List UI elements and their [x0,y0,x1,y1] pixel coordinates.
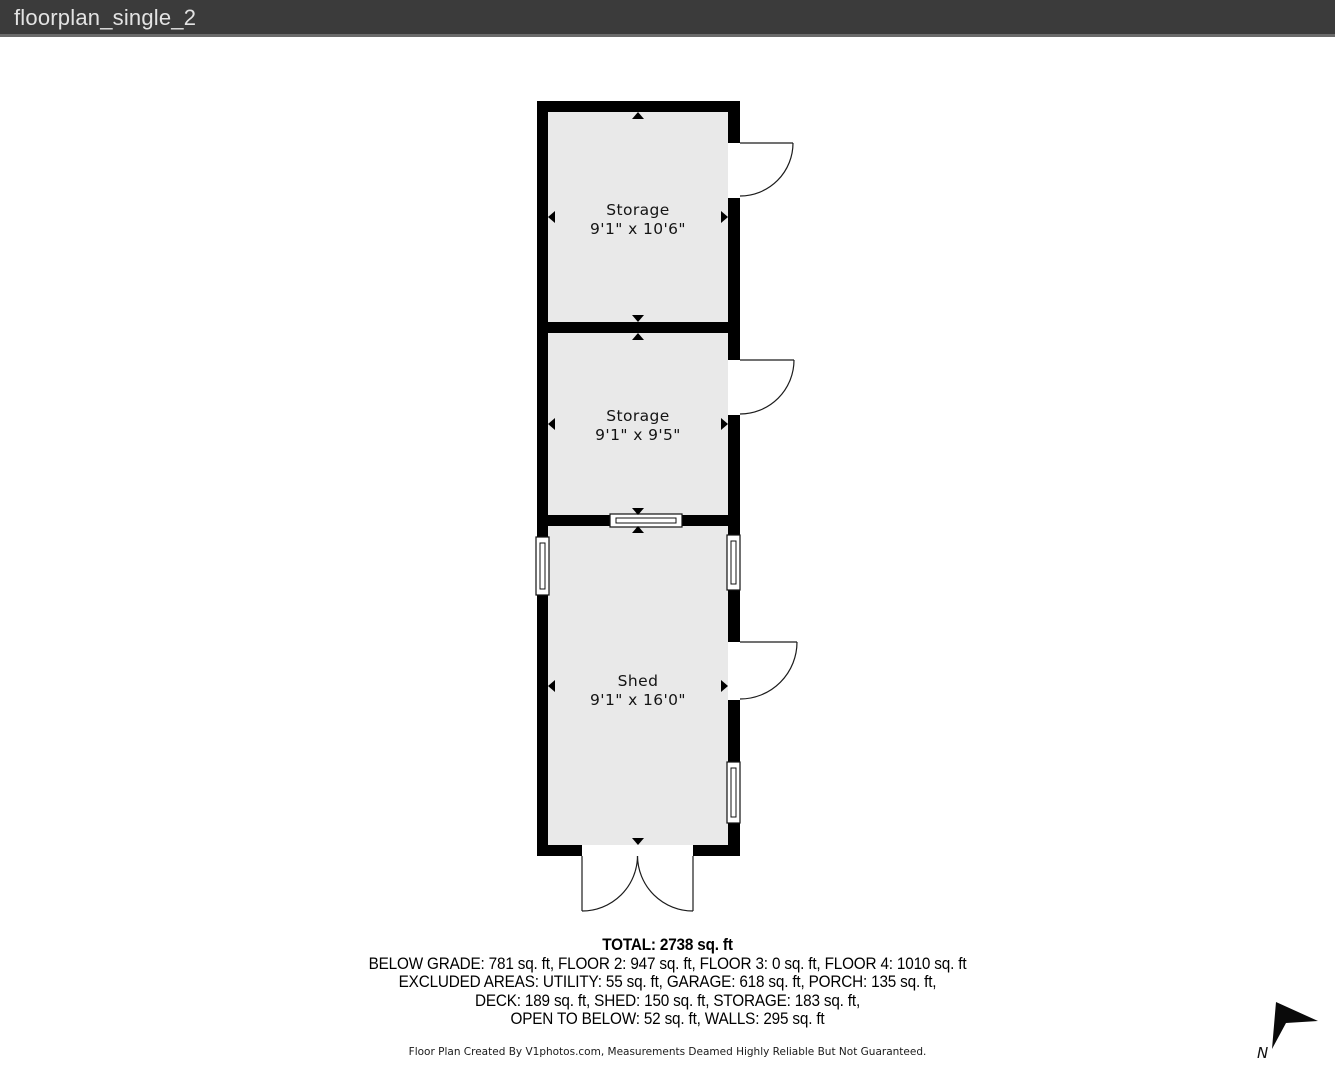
double-door-icon [582,856,693,911]
room-name: Storage [590,201,686,220]
double-door-right-arc [638,856,694,911]
room-dimensions: 9'1" x 10'6" [590,220,686,239]
door-3-opening [728,642,740,700]
room-label-storage-2: Storage 9'1" x 9'5" [595,407,681,445]
double-door-opening [582,845,693,856]
total-area: TOTAL: 2738 sq. ft [67,936,1269,955]
room-dimensions: 9'1" x 9'5" [595,426,681,445]
room-label-shed: Shed 9'1" x 16'0" [590,672,686,710]
double-door-left-arc [582,856,638,911]
door-1-icon [740,143,793,196]
shed-right-bottom-window-icon [727,762,740,823]
door-2-opening [728,360,740,415]
room-name: Storage [595,407,681,426]
door-2-icon [740,360,794,414]
room-label-storage-1: Storage 9'1" x 10'6" [590,201,686,239]
summary-line: DECK: 189 sq. ft, SHED: 150 sq. ft, STOR… [67,992,1269,1011]
shed-left-window-icon [536,537,549,595]
door-1-opening [728,143,740,198]
door-1-swing-arc [740,143,793,196]
door-2-swing-arc [740,360,794,414]
floorplan-drawing [0,0,1335,1080]
pass-through-window-icon [610,514,682,527]
summary-line: OPEN TO BELOW: 52 sq. ft, WALLS: 295 sq.… [67,1010,1269,1029]
summary-line: BELOW GRADE: 781 sq. ft, FLOOR 2: 947 sq… [67,955,1269,974]
room-dimensions: 9'1" x 16'0" [590,691,686,710]
shed-right-top-window-icon [727,535,740,590]
room-name: Shed [590,672,686,691]
area-summary: TOTAL: 2738 sq. ft BELOW GRADE: 781 sq. … [67,936,1269,1029]
disclaimer-text: Floor Plan Created By V1photos.com, Meas… [0,1046,1335,1058]
north-arrow-icon [1272,1002,1318,1049]
door-3-swing-arc [740,642,797,699]
door-3-icon [740,642,797,699]
summary-line: EXCLUDED AREAS: UTILITY: 55 sq. ft, GARA… [67,973,1269,992]
north-label: N [1257,1044,1268,1062]
page: floorplan_single_2 [0,0,1335,1080]
